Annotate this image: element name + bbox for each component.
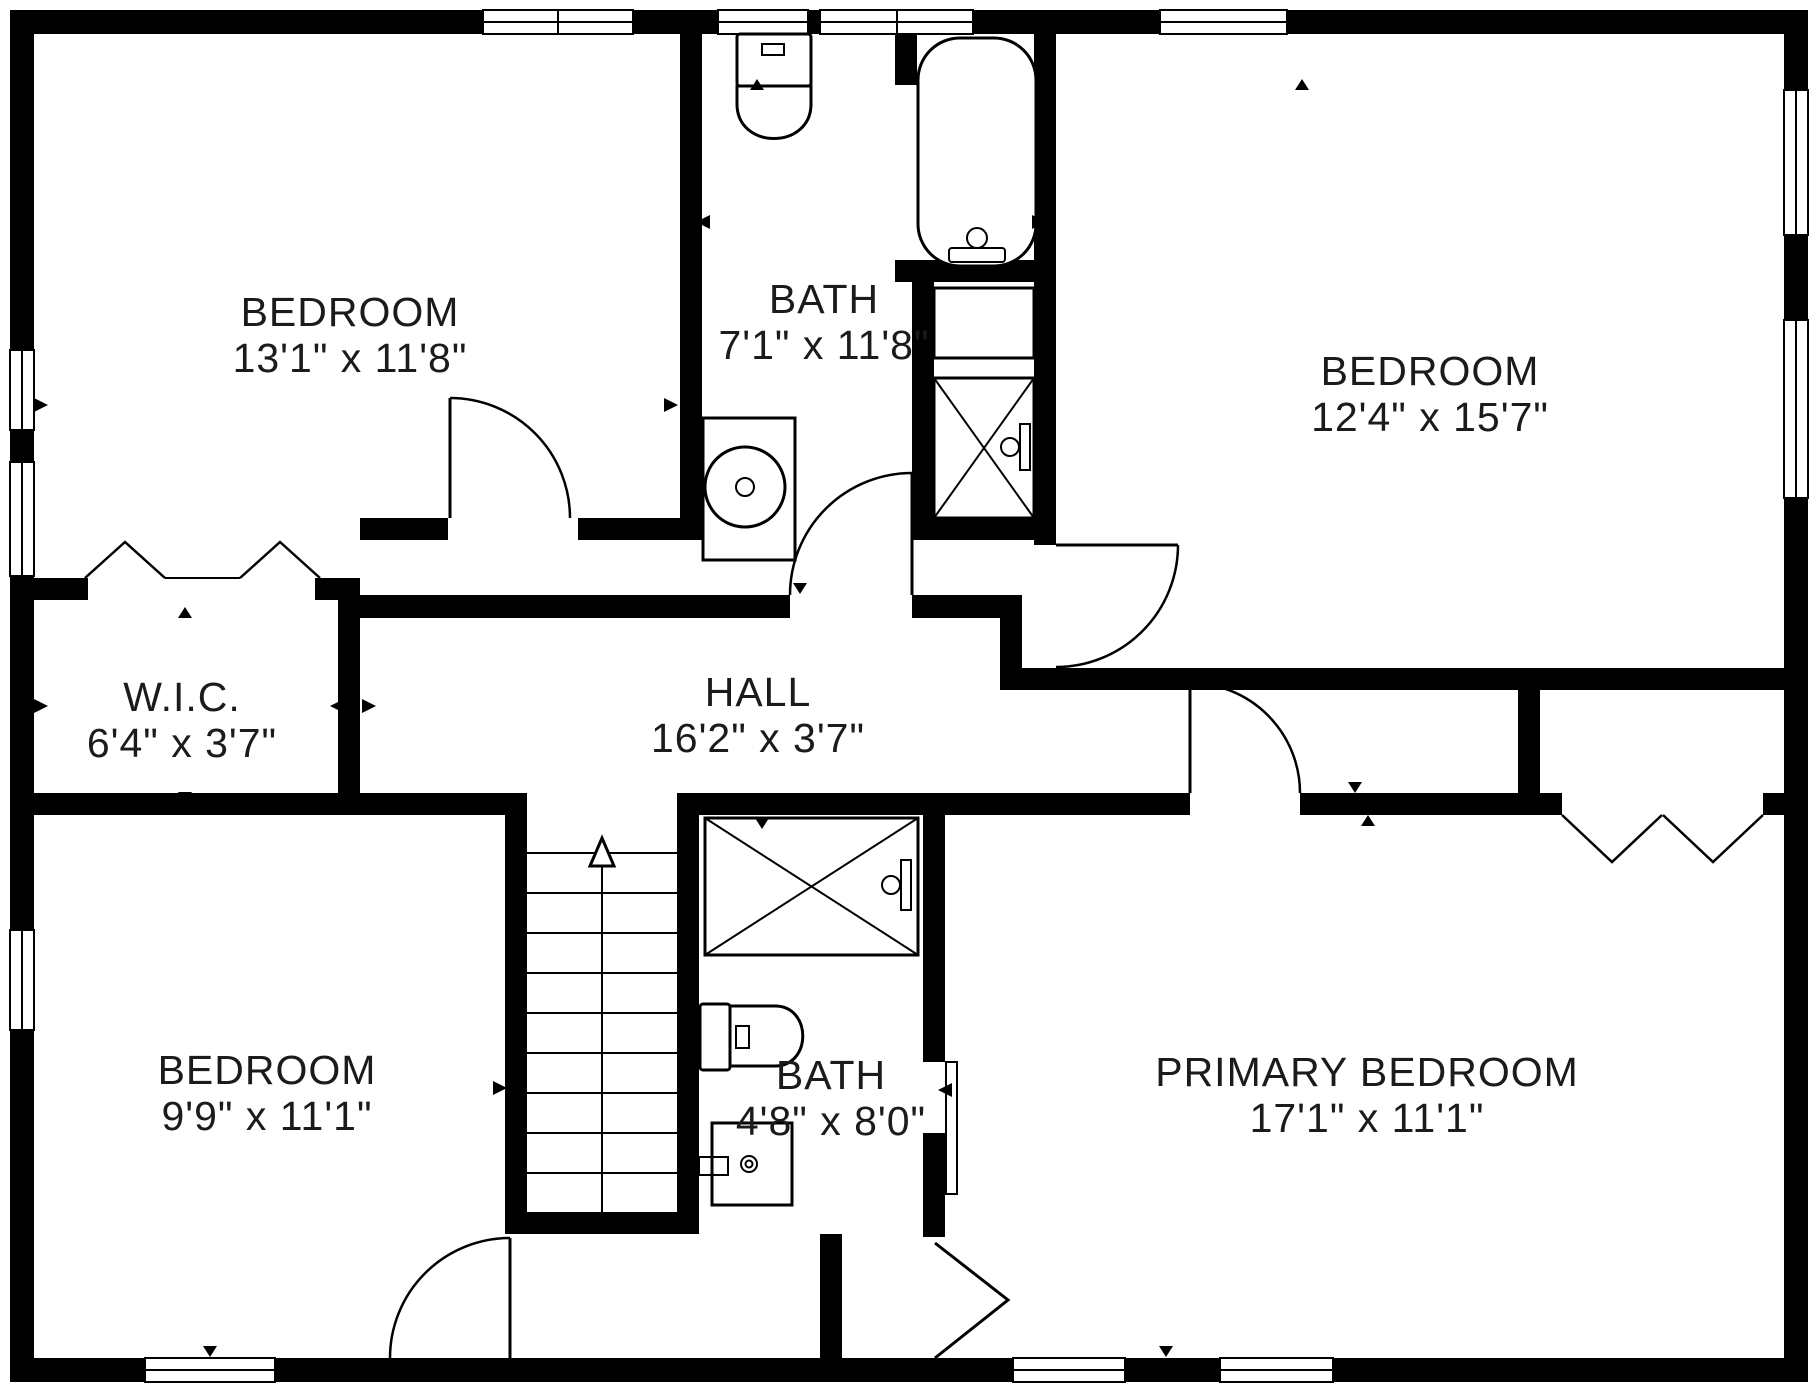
window: [718, 10, 808, 34]
room-name: BEDROOM: [158, 1047, 377, 1093]
room-name: HALL: [705, 669, 812, 715]
triangle-marker: [178, 607, 192, 618]
room-label-primary-bedroom: PRIMARY BEDROOM 17'1" x 11'1": [1155, 1049, 1579, 1141]
door-bedroom1: [450, 398, 570, 518]
room-label-bedroom-top-right: BEDROOM 12'4" x 15'7": [1311, 348, 1549, 440]
wall-wic-top-a: [32, 578, 88, 600]
room-dimensions: 9'9" x 11'1": [161, 1093, 372, 1139]
window: [10, 462, 34, 576]
window: [1220, 1358, 1333, 1382]
room-label-bath-top: BATH 7'1" x 11'8": [718, 276, 929, 368]
wall-closet2-left: [1518, 668, 1540, 815]
wall-hall-jog: [1000, 595, 1022, 690]
door-ajar-closet3: [935, 1243, 1008, 1358]
room-label-hall: HALL 16'2" x 3'7": [651, 669, 865, 761]
wall-closet2-top: [1518, 668, 1808, 690]
room-name: BATH: [769, 276, 879, 322]
window: [145, 1358, 275, 1382]
wall-bedroom1-bottom-a: [360, 518, 448, 540]
triangle-marker: [493, 1081, 507, 1095]
wall-stairs-right: [677, 815, 699, 1234]
wall-wic-right: [338, 578, 360, 815]
room-name: BEDROOM: [1321, 348, 1540, 394]
staircase: [527, 838, 677, 1212]
wall-hall-bottom-b: [360, 793, 527, 815]
room-dimensions: 7'1" x 11'8": [718, 322, 929, 368]
room-name: BATH: [776, 1052, 886, 1098]
shower-icon: [705, 818, 918, 955]
room-name: W.I.C.: [123, 674, 241, 720]
wall-exterior-left: [10, 10, 34, 1382]
triangle-marker: [1348, 782, 1362, 793]
room-name: BEDROOM: [241, 289, 460, 335]
fixtures: [694, 34, 1036, 1205]
bifold-door-wic: [85, 542, 320, 578]
triangle-marker: [34, 398, 48, 412]
room-dimensions: 12'4" x 15'7": [1311, 394, 1549, 440]
window: [10, 350, 34, 430]
door-bedroom2: [1056, 545, 1178, 667]
bifold-door-primary-closet: [1562, 815, 1763, 862]
wall-bedroom1-bath: [680, 10, 702, 540]
wall-bath2-right-a: [923, 815, 945, 1062]
room-label-bedroom-bottom-left: BEDROOM 9'9" x 11'1": [158, 1047, 377, 1139]
window: [483, 10, 633, 34]
floor-plan: BEDROOM 13'1" x 11'8" BATH 7'1" x 11'8" …: [0, 0, 1818, 1392]
wall-hall-bottom-a: [30, 793, 360, 815]
triangle-marker: [1159, 1346, 1173, 1357]
wall-hall-top-a: [360, 595, 790, 618]
wall-bedroom1-bottom-b: [578, 518, 702, 540]
room-label-wic: W.I.C. 6'4" x 3'7": [87, 674, 277, 766]
triangle-marker: [330, 699, 344, 713]
room-labels: BEDROOM 13'1" x 11'8" BATH 7'1" x 11'8" …: [87, 276, 1579, 1144]
window: [10, 930, 34, 1030]
door-bath1: [790, 473, 912, 595]
wall-closet3-left: [820, 1234, 842, 1382]
window: [1784, 320, 1808, 498]
vanity-sink-icon: [694, 418, 795, 560]
room-dimensions: 16'2" x 3'7": [651, 715, 865, 761]
sliding-door-bath2: [946, 1062, 957, 1194]
wall-stairs-left: [505, 815, 527, 1234]
room-name: PRIMARY BEDROOM: [1155, 1049, 1579, 1095]
floor-plan-page: BEDROOM 13'1" x 11'8" BATH 7'1" x 11'8" …: [0, 0, 1818, 1392]
door-primary-bedroom: [1190, 683, 1300, 793]
room-dimensions: 6'4" x 3'7": [87, 720, 277, 766]
walls: [10, 10, 1808, 1382]
room-dimensions: 4'8" x 8'0": [736, 1098, 926, 1144]
room-label-bedroom-top-left: BEDROOM 13'1" x 11'8": [233, 289, 468, 381]
toilet-icon: [737, 34, 811, 139]
window: [1160, 10, 1287, 34]
triangle-marker: [34, 699, 48, 713]
wall-stairs-bottom: [505, 1212, 699, 1234]
wall-shower-bottom: [912, 518, 1034, 540]
wall-hall-top-b: [912, 595, 1010, 618]
shower-icon: [934, 378, 1034, 518]
wall-bedroom2-bottom: [1022, 668, 1518, 690]
wall-bath-column: [912, 260, 934, 540]
bathtub-icon: [918, 38, 1036, 266]
room-dimensions: 13'1" x 11'8": [233, 335, 468, 381]
triangle-marker: [203, 1346, 217, 1357]
wall-bath2-right-b: [923, 1133, 945, 1237]
triangle-marker: [664, 398, 678, 412]
window: [1784, 90, 1808, 235]
triangle-marker: [362, 699, 376, 713]
window: [1013, 1358, 1125, 1382]
window: [820, 10, 973, 34]
wall-hall-bottom-c: [677, 793, 1190, 815]
linen-closet-icon: [934, 288, 1034, 358]
wall-exterior-bottom: [10, 1358, 1808, 1382]
door-bedroom3: [390, 1238, 510, 1358]
wall-hall-bottom-e: [1763, 793, 1808, 815]
triangle-marker: [1295, 79, 1309, 90]
triangle-marker: [1361, 815, 1375, 826]
triangle-marker: [793, 583, 807, 594]
room-dimensions: 17'1" x 11'1": [1250, 1095, 1485, 1141]
